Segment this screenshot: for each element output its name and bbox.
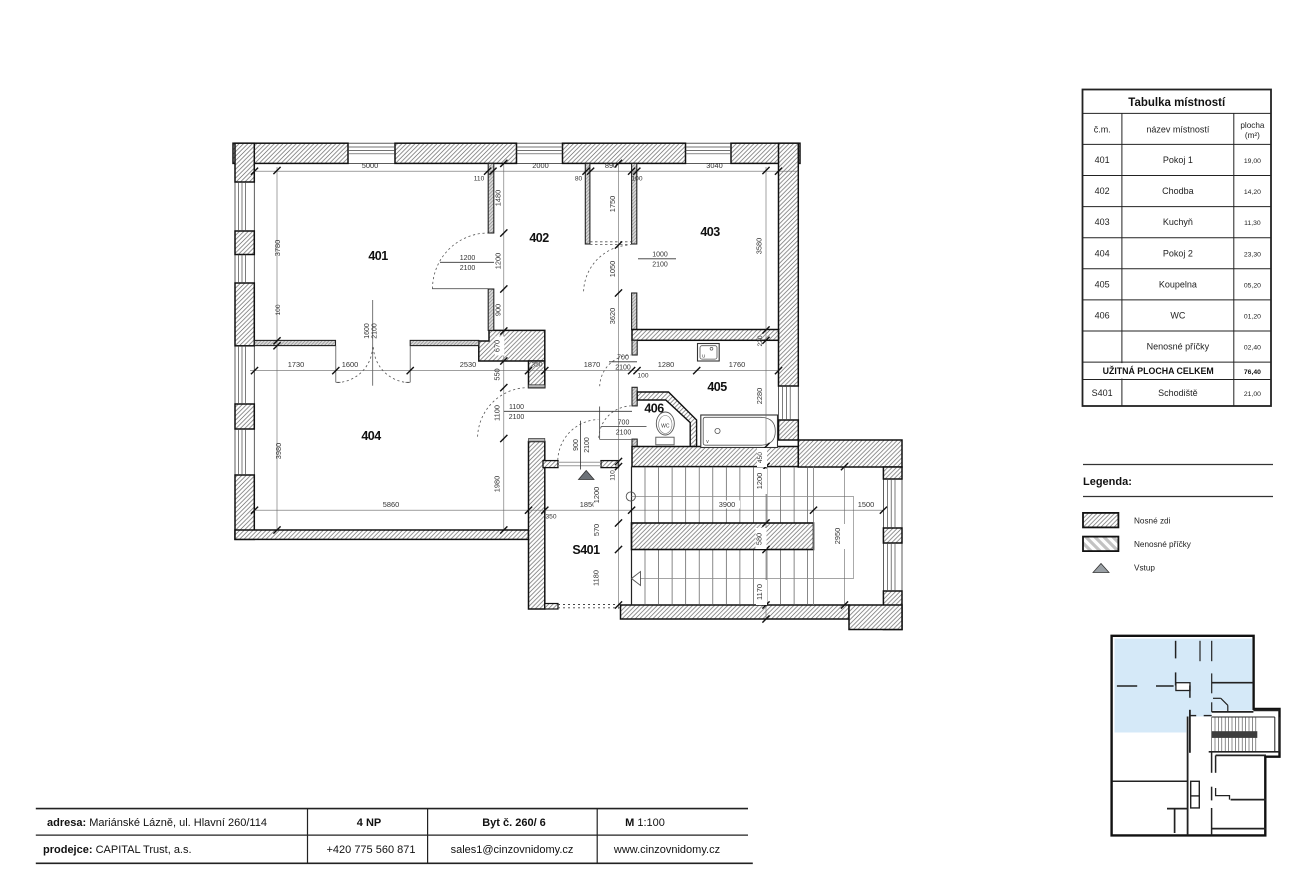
svg-text:405: 405 xyxy=(1095,279,1110,289)
svg-text:1980: 1980 xyxy=(493,476,502,492)
svg-text:2530: 2530 xyxy=(460,360,476,369)
svg-text:3900: 3900 xyxy=(719,500,735,509)
svg-text:1100: 1100 xyxy=(509,404,524,411)
svg-text:110: 110 xyxy=(610,470,617,481)
svg-text:570: 570 xyxy=(592,524,601,536)
svg-text:350: 350 xyxy=(545,514,556,521)
svg-text:405: 405 xyxy=(707,380,727,394)
svg-text:2950: 2950 xyxy=(833,528,842,544)
svg-text:403: 403 xyxy=(1095,217,1110,227)
svg-text:www.cinzovnidomy.cz: www.cinzovnidomy.cz xyxy=(613,844,720,856)
svg-text:1500: 1500 xyxy=(858,500,874,509)
svg-text:23,30: 23,30 xyxy=(1244,251,1261,258)
svg-text:1280: 1280 xyxy=(658,360,674,369)
svg-text:2100: 2100 xyxy=(372,323,379,339)
svg-text:3780: 3780 xyxy=(273,240,282,256)
svg-text:3980: 3980 xyxy=(274,443,283,459)
svg-text:100: 100 xyxy=(637,372,648,379)
svg-text:406: 406 xyxy=(644,402,664,416)
svg-text:Pokoj 2: Pokoj 2 xyxy=(1163,248,1193,258)
svg-text:900: 900 xyxy=(494,304,503,316)
svg-text:02,40: 02,40 xyxy=(1244,345,1261,352)
svg-text:Legenda:: Legenda: xyxy=(1083,476,1132,488)
svg-text:u: u xyxy=(702,354,705,360)
svg-text:UŽITNÁ PLOCHA CELKEM: UŽITNÁ PLOCHA CELKEM xyxy=(1103,365,1214,376)
svg-text:S401: S401 xyxy=(572,543,600,557)
svg-text:1750: 1750 xyxy=(608,196,617,212)
svg-text:1760: 1760 xyxy=(729,360,745,369)
svg-text:Vstup: Vstup xyxy=(1134,564,1155,573)
svg-text:01,20: 01,20 xyxy=(1244,313,1261,320)
svg-text:1600: 1600 xyxy=(342,360,358,369)
svg-text:1170: 1170 xyxy=(755,584,764,600)
svg-text:21,00: 21,00 xyxy=(1244,391,1261,398)
svg-text:2100: 2100 xyxy=(509,414,525,421)
svg-text:3040: 3040 xyxy=(706,161,722,170)
svg-text:Nenosné příčky: Nenosné příčky xyxy=(1147,342,1210,352)
svg-text:Nenosné příčky: Nenosné příčky xyxy=(1134,540,1192,549)
svg-text:Kuchyň: Kuchyň xyxy=(1163,217,1193,227)
svg-text:1730: 1730 xyxy=(288,360,304,369)
svg-text:403: 403 xyxy=(700,225,720,239)
svg-text:76,40: 76,40 xyxy=(1244,369,1261,376)
svg-text:1600: 1600 xyxy=(364,323,371,339)
svg-text:19,00: 19,00 xyxy=(1244,158,1261,165)
svg-text:1000: 1000 xyxy=(652,252,668,259)
svg-text:prodejce: CAPITAL Trust, a.s.: prodejce: CAPITAL Trust, a.s. xyxy=(43,844,192,856)
svg-text:2100: 2100 xyxy=(615,365,631,372)
svg-text:580: 580 xyxy=(755,533,764,545)
svg-text:4 NP: 4 NP xyxy=(357,817,381,829)
svg-text:80: 80 xyxy=(575,176,583,183)
svg-text:+420 775 560 871: +420 775 560 871 xyxy=(326,844,415,856)
svg-text:402: 402 xyxy=(529,231,549,245)
svg-text:Koupelna: Koupelna xyxy=(1159,279,1197,289)
svg-text:401: 401 xyxy=(368,249,388,263)
svg-text:(m²): (m²) xyxy=(1245,131,1260,140)
svg-text:100: 100 xyxy=(631,176,642,183)
svg-text:název místností: název místností xyxy=(1146,125,1210,135)
svg-text:Schodiště: Schodiště xyxy=(1158,388,1198,398)
svg-text:3620: 3620 xyxy=(608,308,617,324)
svg-text:2000: 2000 xyxy=(532,161,548,170)
svg-text:č.m.: č.m. xyxy=(1094,125,1111,135)
svg-text:402: 402 xyxy=(1095,186,1110,196)
svg-text:1050: 1050 xyxy=(608,261,617,277)
svg-text:1180: 1180 xyxy=(592,570,601,586)
svg-text:401: 401 xyxy=(1095,155,1110,165)
svg-text:700: 700 xyxy=(617,355,629,362)
svg-text:550: 550 xyxy=(493,368,502,380)
svg-text:110: 110 xyxy=(474,176,485,183)
svg-text:1200: 1200 xyxy=(460,255,476,262)
svg-text:900: 900 xyxy=(573,439,580,451)
svg-text:1480: 1480 xyxy=(494,190,503,206)
svg-text:S401: S401 xyxy=(1092,388,1113,398)
svg-text:350: 350 xyxy=(531,362,542,369)
svg-text:5860: 5860 xyxy=(383,500,399,509)
svg-text:1870: 1870 xyxy=(584,360,600,369)
svg-text:700: 700 xyxy=(618,419,630,426)
svg-text:05,20: 05,20 xyxy=(1244,282,1261,289)
svg-text:adresa: Mariánské Lázně, ul. H: adresa: Mariánské Lázně, ul. Hlavní 260/… xyxy=(47,817,267,829)
svg-text:406: 406 xyxy=(1095,310,1110,320)
svg-text:220: 220 xyxy=(757,335,764,346)
svg-text:plocha: plocha xyxy=(1240,121,1265,130)
svg-text:M 1:100: M 1:100 xyxy=(625,817,665,829)
svg-text:1100: 1100 xyxy=(493,405,502,421)
svg-text:2100: 2100 xyxy=(652,262,668,269)
svg-text:1200: 1200 xyxy=(494,253,503,269)
svg-text:100: 100 xyxy=(275,304,282,315)
svg-text:2100: 2100 xyxy=(584,437,591,453)
svg-text:WC: WC xyxy=(661,424,670,430)
svg-text:14,20: 14,20 xyxy=(1244,189,1261,196)
svg-text:11,30: 11,30 xyxy=(1244,220,1261,227)
svg-text:1200: 1200 xyxy=(755,473,764,489)
svg-text:2100: 2100 xyxy=(616,429,632,436)
svg-text:404: 404 xyxy=(361,429,381,443)
svg-text:670: 670 xyxy=(493,340,502,352)
svg-text:Chodba: Chodba xyxy=(1162,186,1194,196)
svg-text:5000: 5000 xyxy=(362,161,378,170)
svg-text:450: 450 xyxy=(757,452,764,463)
svg-text:sales1@cinzovnidomy.cz: sales1@cinzovnidomy.cz xyxy=(451,844,574,856)
svg-text:Nosné zdi: Nosné zdi xyxy=(1134,517,1171,526)
svg-text:2100: 2100 xyxy=(460,265,476,272)
svg-text:2280: 2280 xyxy=(755,388,764,404)
svg-text:1200: 1200 xyxy=(592,487,601,503)
svg-text:404: 404 xyxy=(1095,248,1110,258)
svg-text:Pokoj 1: Pokoj 1 xyxy=(1163,155,1193,165)
svg-text:3580: 3580 xyxy=(755,238,764,254)
svg-text:WC: WC xyxy=(1170,310,1185,320)
svg-text:Tabulka místností: Tabulka místností xyxy=(1128,97,1226,109)
svg-text:Byt č. 260/ 6: Byt č. 260/ 6 xyxy=(482,817,546,829)
